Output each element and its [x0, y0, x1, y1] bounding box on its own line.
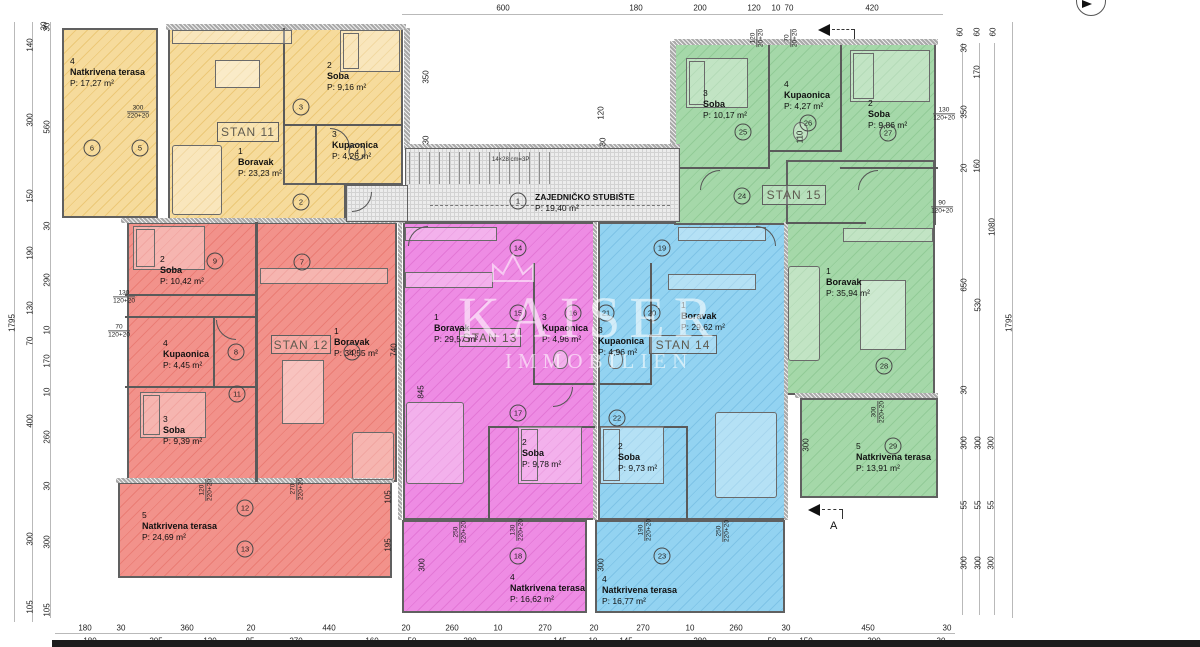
dim-label: 30: [43, 222, 52, 231]
dim-label: 70: [26, 337, 35, 346]
room-label: 2SobaP: 9,73 m²: [618, 441, 657, 474]
dim-label: 560: [43, 120, 52, 133]
furniture-sofa: [352, 432, 394, 480]
dim-label: 300: [802, 438, 811, 451]
room-num: 4: [784, 79, 830, 90]
dim-label: 150: [26, 189, 35, 202]
dim-label: 30: [960, 44, 969, 53]
apartment-name: STAN 11: [221, 125, 275, 139]
dim-label: 1080: [988, 218, 997, 236]
dim-label: 300: [974, 556, 983, 569]
dim-label: 180: [629, 4, 642, 13]
room-label: 4Natkrivena terasaP: 17,27 m²: [70, 56, 145, 89]
dim-label: 120: [747, 4, 760, 13]
furniture-counter: [260, 268, 388, 284]
dim-label: 180: [78, 624, 91, 633]
dim-value: 220+20: [879, 401, 886, 423]
dim-label: 300: [960, 556, 969, 569]
dim-value: 220+20: [127, 113, 149, 120]
room-ref-circle: 24: [734, 188, 751, 205]
dim-label: 20: [590, 624, 599, 633]
wall: [840, 45, 842, 151]
room-ref-circle: 12: [237, 500, 254, 517]
dim-label: 130220+20: [509, 519, 524, 541]
section-line-bottom-elbow: [842, 509, 843, 519]
wall: [840, 167, 938, 169]
dim-label: 60: [989, 28, 998, 37]
room-num: 3: [703, 88, 747, 99]
wall: [315, 124, 317, 185]
room-label: 4Natkrivena terasaP: 16,62 m²: [510, 572, 585, 605]
dim-value: 20+20: [792, 29, 799, 47]
room-ref-circle: 23: [654, 548, 671, 565]
room-label: 2SobaP: 9,16 m²: [327, 60, 366, 93]
room-ref-circle: 1: [510, 193, 527, 210]
room-ref-circle: 28: [876, 358, 893, 375]
room-name: Natkrivena terasa: [70, 67, 145, 78]
wall: [786, 222, 866, 224]
dim-label: 740: [390, 343, 399, 356]
apartment-name-box: STAN 12: [271, 335, 331, 354]
furniture-counter: [843, 228, 933, 242]
furniture-bed: [850, 50, 930, 102]
room-ref-circle: 8: [228, 344, 245, 361]
dim-label: 530: [974, 298, 983, 311]
dim-value: 220+20: [724, 520, 731, 542]
room-area: P: 24,69 m²: [142, 532, 217, 543]
room-ref-circle: 11: [229, 386, 246, 403]
dim-label: 300: [26, 532, 35, 545]
dim-value: 90: [931, 199, 953, 207]
dim-label: 30: [599, 138, 608, 147]
room-label: 2SobaP: 9,78 m²: [522, 437, 561, 470]
wall: [795, 393, 938, 398]
dim-label: 250220+20: [715, 520, 730, 542]
dim-label: 300: [597, 558, 606, 571]
stairs-label: ZAJEDNIČKO STUBIŠTE: [535, 192, 635, 202]
dim-label: 12020+20: [749, 29, 764, 47]
furniture-sofa: [172, 145, 222, 215]
room-name: Natkrivena terasa: [142, 521, 217, 532]
dim-value: 70: [108, 323, 130, 331]
dim-label: 400: [26, 414, 35, 427]
room-ref-circle: 5: [132, 140, 149, 157]
dim-value: 120+20: [931, 208, 953, 215]
apartment-name-box: STAN 11: [217, 122, 279, 142]
dim-label: 90120+20: [931, 199, 953, 214]
room-name: Soba: [618, 452, 657, 463]
dim-value: 220+20: [518, 519, 525, 541]
dim-label: 120: [597, 106, 606, 119]
room-area: P: 9,16 m²: [327, 82, 366, 93]
furniture-counter: [172, 30, 292, 44]
dim-label: 300220+20: [127, 104, 149, 119]
dim-label: 30: [943, 624, 952, 633]
wall: [686, 426, 688, 520]
dim-label: 190220+20: [637, 519, 652, 541]
furniture-table: [215, 60, 260, 88]
wall: [125, 294, 255, 296]
wall: [125, 316, 255, 318]
dim-label: 420: [865, 4, 878, 13]
room-label: 4KupaonicaP: 4,27 m²: [784, 79, 830, 112]
room-area: P: 13,91 m²: [856, 463, 931, 474]
dim-label: 350: [960, 105, 969, 118]
room-ref-circle: 13: [237, 541, 254, 558]
dim-label: 270: [636, 624, 649, 633]
room-ref-circle: 22: [609, 410, 626, 427]
dim-value: 190: [637, 519, 645, 541]
dim-value: 130: [113, 289, 135, 297]
dim-label: 130120+20: [113, 289, 135, 304]
room-num: 1: [334, 326, 378, 337]
room-area: P: 9,73 m²: [618, 463, 657, 474]
watermark-immobilien: IMMOBILIEN: [505, 349, 693, 374]
dim-value: 270: [289, 478, 297, 500]
dim-label: 350: [422, 70, 431, 83]
dim-label: 300: [26, 113, 35, 126]
room-name: Soba: [868, 109, 907, 120]
room-area: P: 10,42 m²: [160, 276, 204, 287]
dim-label: 1795: [8, 314, 17, 332]
dim-label: 440: [322, 624, 335, 633]
section-line-top: [832, 29, 854, 30]
section-line-bottom: [822, 509, 842, 510]
dim-label: 110: [796, 131, 805, 144]
dim-label: 60: [956, 28, 965, 37]
dim-label: 10: [43, 388, 52, 397]
dim-label: 10: [772, 4, 781, 13]
dim-value: 300: [870, 401, 878, 423]
dim-label: 200: [693, 4, 706, 13]
room-name: Soba: [522, 448, 561, 459]
dim-label: 450: [861, 624, 874, 633]
furniture-sofa: [406, 402, 464, 484]
dim-label: 140: [26, 38, 35, 51]
dim-label: 160: [973, 159, 982, 172]
room-num: 4: [70, 56, 145, 67]
dim-label: 20: [247, 624, 256, 633]
bottom-bar: [52, 640, 1200, 647]
dim-label: 360: [180, 624, 193, 633]
room-ref-circle: 6: [84, 140, 101, 157]
wall: [598, 383, 652, 385]
dim-value: 120+20: [108, 332, 130, 339]
room-label: 3SobaP: 10,17 m²: [703, 88, 747, 121]
dim-label: 55: [987, 501, 996, 510]
room-num: 5: [142, 510, 217, 521]
dim-line: [55, 633, 955, 634]
room-label: 5Natkrivena terasaP: 24,69 m²: [142, 510, 217, 543]
wall: [213, 316, 215, 386]
dim-label: 10: [43, 326, 52, 335]
dim-label: 70120+20: [108, 323, 130, 338]
dim-label: 250220+20: [452, 521, 467, 543]
room-ref-circle: 29: [885, 438, 902, 455]
room-area: P: 10,17 m²: [703, 110, 747, 121]
dim-label: 170: [43, 354, 52, 367]
dim-value: 220+20: [207, 479, 214, 501]
dim-label: 30: [422, 136, 431, 145]
furniture-counter: [678, 227, 766, 241]
dim-label: 260: [43, 430, 52, 443]
dim-label: 130120+20: [933, 106, 955, 121]
furniture-sofa: [788, 266, 820, 361]
room-area: P: 35,94 m²: [826, 288, 870, 299]
room-label: 4Natkrivena terasaP: 16,77 m²: [602, 574, 677, 607]
stairs-note: 14×28 cm=3P: [492, 157, 529, 163]
room-name: Natkrivena terasa: [510, 583, 585, 594]
dim-label: 105: [384, 490, 393, 503]
north-indicator-icon: [1076, 0, 1106, 16]
dim-value: 220+20: [646, 519, 653, 541]
floor-plan-canvas: ZAJEDNIČKO STUBIŠTEP: 19,40 m²14×28 cm=3…: [0, 0, 1200, 647]
dim-label: 300: [987, 436, 996, 449]
room-label: 2SobaP: 10,42 m²: [160, 254, 204, 287]
dim-value: 120+20: [113, 298, 135, 305]
dim-label: 30: [782, 624, 791, 633]
room-name: Soba: [703, 99, 747, 110]
dim-label: 120220+20: [198, 479, 213, 501]
room-num: 2: [618, 441, 657, 452]
dim-label: 130: [26, 301, 35, 314]
dim-label: 845: [417, 385, 426, 398]
room-num: 2: [868, 98, 907, 109]
dim-value: 250: [452, 521, 460, 543]
wall: [255, 222, 258, 482]
furniture-table: [282, 360, 324, 424]
wall: [404, 28, 410, 150]
wall: [533, 383, 595, 385]
stair-treads: [409, 152, 559, 184]
dim-label: 60: [973, 28, 982, 37]
room-area: P: 9,39 m²: [163, 436, 202, 447]
dim-label: 260: [729, 624, 742, 633]
dim-label: 300: [987, 556, 996, 569]
dim-label: 600: [496, 4, 509, 13]
room-num: 1: [238, 146, 282, 157]
room-label: 4KupaonicaP: 4,45 m²: [163, 338, 209, 371]
dim-value: 130: [509, 519, 517, 541]
room-num: 3: [163, 414, 202, 425]
dim-label: 10: [686, 624, 695, 633]
room-ref-circle: 27: [880, 125, 897, 142]
dim-label: 30: [960, 386, 969, 395]
room-num: 1: [826, 266, 870, 277]
room-label: 1BoravakP: 35,94 m²: [826, 266, 870, 299]
room-ref-circle: 10: [344, 344, 361, 361]
dim-label: 170: [973, 65, 982, 78]
room-ref-circle: 3: [293, 99, 310, 116]
dim-label: 70: [785, 4, 794, 13]
wall: [398, 222, 402, 520]
room-name: Kupaonica: [163, 349, 209, 360]
dim-label: 300: [974, 436, 983, 449]
dim-label: 1795: [1005, 314, 1014, 332]
room-area: P: 4,45 m²: [163, 360, 209, 371]
room-ref-circle: 18: [510, 548, 527, 565]
dim-label: 30: [117, 624, 126, 633]
dim-label: 650: [960, 278, 969, 291]
room-area: P: 23,23 m²: [238, 168, 282, 179]
section-arrow-top-icon: [818, 24, 830, 36]
room-ref-circle: 4: [349, 144, 366, 161]
room-num: 4: [602, 574, 677, 585]
apartment-name-box: STAN 15: [762, 185, 826, 205]
room-ref-circle: 7: [294, 254, 311, 271]
watermark-kaiser: KAISER: [458, 284, 721, 351]
room-label: 1BoravakP: 23,23 m²: [238, 146, 282, 179]
dim-value: 220+20: [298, 478, 305, 500]
room-area: P: 9,78 m²: [522, 459, 561, 470]
room-num: 2: [160, 254, 204, 265]
dim-label: 300: [43, 535, 52, 548]
room-name: Soba: [163, 425, 202, 436]
stairs-area-label: P: 19,40 m²: [535, 203, 579, 213]
dim-value: 120: [198, 479, 206, 501]
room-area: P: 17,27 m²: [70, 78, 145, 89]
dim-line: [979, 43, 980, 615]
room-name: Kupaonica: [784, 90, 830, 101]
dim-value: 130: [933, 106, 955, 114]
room-name: Boravak: [826, 277, 870, 288]
dim-line: [962, 43, 963, 615]
room-ref-circle: 2: [293, 194, 310, 211]
dim-label: 270220+20: [289, 478, 304, 500]
dim-value: 220+20: [461, 521, 468, 543]
section-label: A: [830, 520, 837, 532]
dim-line: [994, 43, 995, 615]
dim-label: 30: [43, 482, 52, 491]
room-num: 2: [327, 60, 366, 71]
dim-value: 20+20: [758, 29, 765, 47]
dim-label: 30: [43, 23, 52, 32]
room-num: 4: [163, 338, 209, 349]
room-ref-circle: 26: [800, 115, 817, 132]
room-num: 2: [522, 437, 561, 448]
wall: [488, 426, 490, 520]
crown-watermark-icon: [490, 252, 536, 284]
room-name: Soba: [327, 71, 366, 82]
dim-label: 300: [960, 436, 969, 449]
section-arrow-bottom-icon: [808, 504, 820, 516]
wall: [674, 167, 770, 169]
room-ref-circle: 25: [735, 124, 752, 141]
dim-line: [402, 14, 943, 15]
room-area: P: 16,77 m²: [602, 596, 677, 607]
dim-label: 55: [960, 501, 969, 510]
apartment-name: STAN 12: [274, 338, 329, 352]
dim-label: 195: [384, 538, 393, 551]
dim-value: 250: [715, 520, 723, 542]
dim-label: 20: [960, 164, 969, 173]
dim-label: 105: [43, 603, 52, 616]
dim-value: 120: [749, 29, 757, 47]
room-name: Natkrivena terasa: [602, 585, 677, 596]
room-num: 4: [510, 572, 585, 583]
dim-value: 70: [783, 29, 791, 47]
dim-label: 10: [494, 624, 503, 633]
room-name: Soba: [160, 265, 204, 276]
dim-label: 300: [418, 558, 427, 571]
dim-label: 190: [26, 246, 35, 259]
dim-label: 300220+20: [870, 401, 885, 423]
room-label: 3SobaP: 9,39 m²: [163, 414, 202, 447]
dim-label: 260: [445, 624, 458, 633]
dim-label: 55: [974, 501, 983, 510]
furniture-sofa: [715, 412, 777, 498]
dim-line: [50, 22, 51, 618]
dim-label: 7020+20: [783, 29, 798, 47]
room-name: Boravak: [238, 157, 282, 168]
room-ref-circle: 9: [207, 253, 224, 270]
wall: [670, 41, 676, 151]
dim-value: 120+20: [933, 115, 955, 122]
room-area: P: 16,62 m²: [510, 594, 585, 605]
room-num: 3: [332, 129, 378, 140]
section-line-top-elbow: [854, 29, 855, 39]
wall: [768, 150, 842, 152]
dim-label: 290: [43, 273, 52, 286]
dim-value: 300: [127, 104, 149, 112]
dim-label: 270: [538, 624, 551, 633]
room-ref-circle: 17: [510, 405, 527, 422]
wall: [674, 39, 938, 45]
room-area: P: 4,27 m²: [784, 101, 830, 112]
apartment-name: STAN 15: [767, 188, 822, 202]
wall: [283, 124, 403, 126]
dim-label: 20: [402, 624, 411, 633]
dim-label: 105: [26, 600, 35, 613]
room-ref-circle: 19: [654, 240, 671, 257]
